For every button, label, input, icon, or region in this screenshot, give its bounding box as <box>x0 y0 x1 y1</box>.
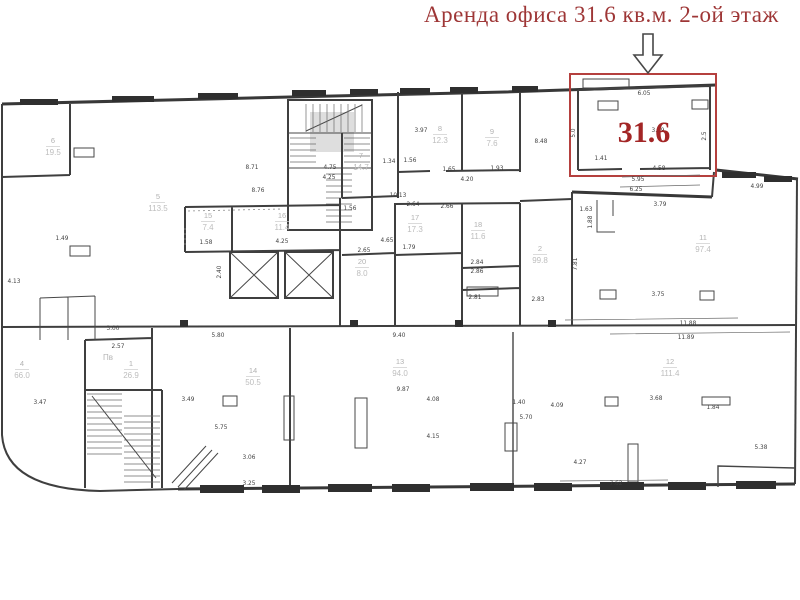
svg-text:26.9: 26.9 <box>123 371 139 380</box>
svg-text:1.41: 1.41 <box>595 156 608 162</box>
svg-text:2.84: 2.84 <box>471 260 484 266</box>
svg-text:1.34: 1.34 <box>383 159 396 165</box>
svg-text:3.25: 3.25 <box>243 481 256 487</box>
svg-text:20: 20 <box>358 257 366 266</box>
svg-text:14.7: 14.7 <box>353 163 369 172</box>
svg-text:19.5: 19.5 <box>45 148 61 157</box>
svg-text:5.38: 5.38 <box>755 445 768 451</box>
svg-text:1.58: 1.58 <box>200 240 213 246</box>
svg-text:9.40: 9.40 <box>393 333 406 339</box>
svg-text:12.3: 12.3 <box>432 136 448 145</box>
svg-text:3.47: 3.47 <box>34 400 47 406</box>
svg-text:94.0: 94.0 <box>392 369 408 378</box>
svg-text:6: 6 <box>51 136 55 145</box>
svg-text:4.25: 4.25 <box>323 175 336 181</box>
svg-text:7.81: 7.81 <box>573 257 579 270</box>
svg-text:4.58: 4.58 <box>653 166 666 172</box>
svg-text:14: 14 <box>249 366 257 375</box>
svg-text:6.05: 6.05 <box>638 91 651 97</box>
svg-text:5.70: 5.70 <box>520 415 533 421</box>
svg-text:13: 13 <box>396 357 404 366</box>
svg-text:6.25: 6.25 <box>630 187 643 193</box>
svg-text:99.8: 99.8 <box>532 256 548 265</box>
room6-walls <box>2 104 70 177</box>
svg-text:11: 11 <box>699 233 707 242</box>
svg-text:113.5: 113.5 <box>148 204 168 213</box>
window-marks <box>20 86 792 493</box>
bottom-band-walls <box>85 328 795 490</box>
svg-text:4.15: 4.15 <box>427 434 440 440</box>
svg-text:2.64: 2.64 <box>407 202 420 208</box>
svg-text:5.75: 5.75 <box>215 425 228 431</box>
svg-text:16: 16 <box>278 211 286 220</box>
svg-text:3.79: 3.79 <box>654 202 667 208</box>
svg-text:5.80: 5.80 <box>212 333 225 339</box>
elevator-shafts <box>230 252 333 298</box>
svg-text:11.89: 11.89 <box>678 335 695 341</box>
listing-title: Аренда офиса 31.6 кв.м. 2-ой этаж <box>424 2 779 28</box>
svg-text:7.62: 7.62 <box>610 481 623 487</box>
svg-text:8.76: 8.76 <box>252 188 265 194</box>
svg-text:66.0: 66.0 <box>14 371 30 380</box>
svg-text:18: 18 <box>474 220 482 229</box>
svg-text:4.09: 4.09 <box>551 403 564 409</box>
svg-text:4: 4 <box>20 359 24 368</box>
svg-text:3.00: 3.00 <box>107 326 120 332</box>
svg-text:4.99: 4.99 <box>751 184 764 190</box>
svg-text:5.0: 5.0 <box>571 128 577 138</box>
room-labels: 619.55113.5714.7812.397.6157.41611.41717… <box>8 91 768 487</box>
svg-text:3.68: 3.68 <box>650 396 663 402</box>
svg-text:2.57: 2.57 <box>112 344 125 350</box>
stair-landing <box>310 112 354 152</box>
svg-text:3.97: 3.97 <box>415 128 428 134</box>
svg-text:8.71: 8.71 <box>246 165 259 171</box>
svg-text:15: 15 <box>204 211 212 220</box>
svg-text:17: 17 <box>411 213 419 222</box>
svg-text:1.79: 1.79 <box>403 245 416 251</box>
svg-text:4.13: 4.13 <box>8 279 21 285</box>
svg-text:1: 1 <box>129 359 133 368</box>
svg-text:2: 2 <box>538 244 542 253</box>
stair-direction-line <box>92 396 156 478</box>
svg-text:1.40: 1.40 <box>513 400 526 406</box>
svg-text:4.20: 4.20 <box>461 177 474 183</box>
svg-text:9.87: 9.87 <box>397 387 410 393</box>
svg-text:1.49: 1.49 <box>56 236 69 242</box>
down-arrow-icon <box>634 34 662 73</box>
svg-text:1.63: 1.63 <box>580 207 593 213</box>
svg-text:97.4: 97.4 <box>695 245 711 254</box>
floorplan-svg: 619.55113.5714.7812.397.6157.41611.41717… <box>0 0 800 600</box>
svg-text:5: 5 <box>156 192 160 201</box>
svg-text:3.49: 3.49 <box>182 397 195 403</box>
svg-text:17.3: 17.3 <box>407 225 423 234</box>
svg-text:4.08: 4.08 <box>427 397 440 403</box>
svg-text:1.65: 1.65 <box>443 167 456 173</box>
svg-text:11.88: 11.88 <box>680 321 697 327</box>
svg-text:11.4: 11.4 <box>275 223 291 232</box>
room11-walls <box>572 172 714 326</box>
svg-text:8.48: 8.48 <box>535 139 548 145</box>
svg-text:7.6: 7.6 <box>486 139 498 148</box>
svg-text:8.0: 8.0 <box>356 269 368 278</box>
dimension-lines <box>560 175 790 481</box>
radiator-icon <box>74 148 94 157</box>
floorplan-image: 619.55113.5714.7812.397.6157.41611.41717… <box>0 0 800 600</box>
svg-text:1.56: 1.56 <box>404 158 417 164</box>
svg-text:1.56: 1.56 <box>344 206 357 212</box>
svg-text:31.6: 31.6 <box>618 116 671 149</box>
svg-text:2.86: 2.86 <box>471 269 484 275</box>
svg-text:111.4: 111.4 <box>661 369 680 378</box>
svg-text:3.75: 3.75 <box>652 292 665 298</box>
svg-text:4.25: 4.25 <box>276 239 289 245</box>
svg-text:4.75: 4.75 <box>324 165 337 171</box>
svg-text:1.88: 1.88 <box>588 215 594 228</box>
svg-text:Пв: Пв <box>103 353 113 362</box>
svg-text:5.95: 5.95 <box>632 177 645 183</box>
svg-text:2.66: 2.66 <box>441 204 454 210</box>
svg-text:10.13: 10.13 <box>390 193 407 199</box>
svg-text:2.65: 2.65 <box>358 248 371 254</box>
svg-text:8: 8 <box>438 124 442 133</box>
svg-text:11.6: 11.6 <box>471 232 487 241</box>
svg-text:2.81: 2.81 <box>469 295 482 301</box>
svg-text:1.84: 1.84 <box>707 405 720 411</box>
svg-text:4.65: 4.65 <box>381 238 394 244</box>
svg-text:50.5: 50.5 <box>245 378 261 387</box>
svg-text:7.4: 7.4 <box>202 223 214 232</box>
svg-text:12: 12 <box>666 357 674 366</box>
svg-text:4.27: 4.27 <box>574 460 587 466</box>
svg-text:2.83: 2.83 <box>532 297 545 303</box>
svg-text:2.5: 2.5 <box>702 131 708 141</box>
corridor-wall <box>2 325 795 327</box>
svg-text:9: 9 <box>490 127 494 136</box>
svg-text:7: 7 <box>359 151 363 160</box>
svg-text:2.40: 2.40 <box>217 265 223 278</box>
svg-text:3.06: 3.06 <box>243 455 256 461</box>
svg-text:1.93: 1.93 <box>491 166 504 172</box>
